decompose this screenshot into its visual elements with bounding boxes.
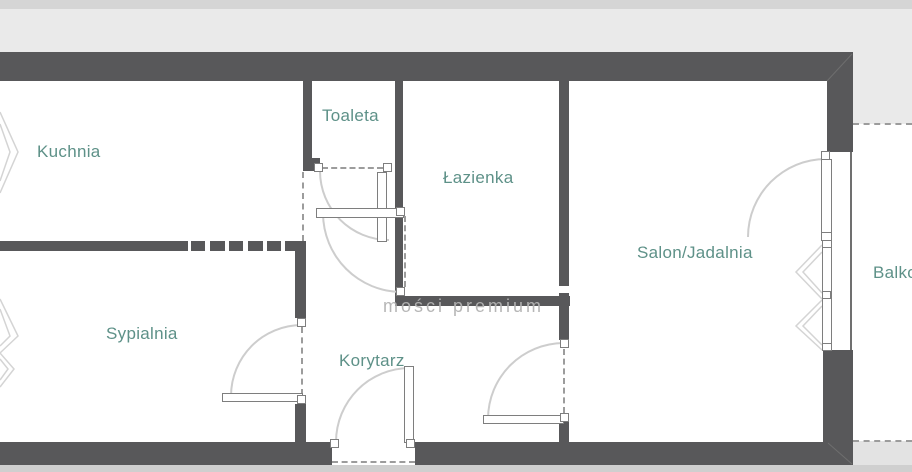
wall-balcony-outer-line [850,152,852,350]
wall-top [0,52,853,81]
hinge-toilet-left [314,163,323,172]
opening-toilet-dashed [322,167,383,169]
wall-right-upper [827,52,853,152]
wall-bottom-left [0,442,332,465]
door-entrance-arc [335,367,410,442]
outside-bottom-strip [0,465,912,472]
wall-toilet-left [303,81,312,160]
floorplan-canvas: Kuchnia Toaleta Łazienka Salon/Jadalnia … [0,0,912,472]
balcony-window-chevron [803,252,822,293]
door-bathroom-arc [322,213,402,293]
hinge-entrance-right [406,439,415,448]
wall-divider-dash [248,241,263,251]
balcony-window-mullion [822,291,831,299]
hinge-balcony-door-top [821,151,830,160]
kitchen-window-chevron [0,112,18,193]
opening-entrance-dashed [332,461,415,463]
room-label-kuchnia: Kuchnia [37,142,101,161]
wall-livingroom-left [559,81,569,340]
outside-top-strip [0,0,912,9]
wall-divider-dash [285,241,295,251]
wall-livingroom-left-stub [559,422,569,442]
wall-bottom-right [415,442,853,465]
room-label-sypialnia: Sypialnia [106,324,178,343]
hinge-bathroom-top [396,207,405,216]
wall-divider-dash [210,241,225,251]
outside-right-area [853,9,912,124]
wall-livingroom-notch [559,286,569,293]
wall-corridor-left-lower [295,404,306,442]
balcony-window-mullion [822,343,832,351]
outside-top-area [0,9,912,52]
bedroom-window-chevron [0,309,10,346]
hinge-toilet-right [383,163,392,172]
watermark-text: mości premium [383,296,544,317]
opening-bathroom-dashed [404,216,406,287]
door-bedroom-arc [230,324,302,396]
bedroom-window-chevron [0,353,14,387]
room-label-lazienka: Łazienka [443,168,513,187]
hinge-entrance-left [330,439,339,448]
door-livingroom-leaf [483,415,564,424]
room-label-balkon: Balkon [873,263,912,282]
balcony-bottom-dashed [853,440,912,442]
wall-kitchen-bedroom-divider [0,241,188,251]
room-label-salon-jadalnia: Salon/Jadalnia [637,243,753,262]
balcony-window-chevron [803,306,822,345]
hinge-bathroom-bottom [396,287,405,296]
wall-divider-dash [229,241,243,251]
hinge-livingroom-top [560,339,569,348]
wall-divider-dash [191,241,205,251]
room-label-toaleta: Toaleta [322,106,379,125]
bedroom-window-chevron [0,359,8,380]
hinge-bedroom-top [297,318,306,327]
balcony-window-chevron [796,245,822,299]
door-livingroom-arc [487,342,564,419]
room-label-korytarz: Korytarz [339,351,405,370]
wall-corridor-left-upper [295,241,306,318]
door-bathroom-leaf [316,208,404,218]
balcony-window-chevron [796,300,822,350]
balcony-window-mullion [822,240,832,248]
bedroom-window-chevron [0,299,18,353]
door-balcony-arc [747,158,826,237]
wall-divider-dash [267,241,281,251]
door-bedroom-leaf [222,393,303,402]
hinge-livingroom-bottom [560,413,569,422]
door-entrance-leaf [404,366,414,443]
kitchen-window-chevron [0,124,10,181]
door-toilet-leaf [377,172,387,242]
opening-kitchen-dashed [302,172,304,241]
balcony-door-leaf [821,159,832,233]
balcony-top-dashed [853,123,912,125]
hinge-bedroom-bottom [297,395,306,404]
